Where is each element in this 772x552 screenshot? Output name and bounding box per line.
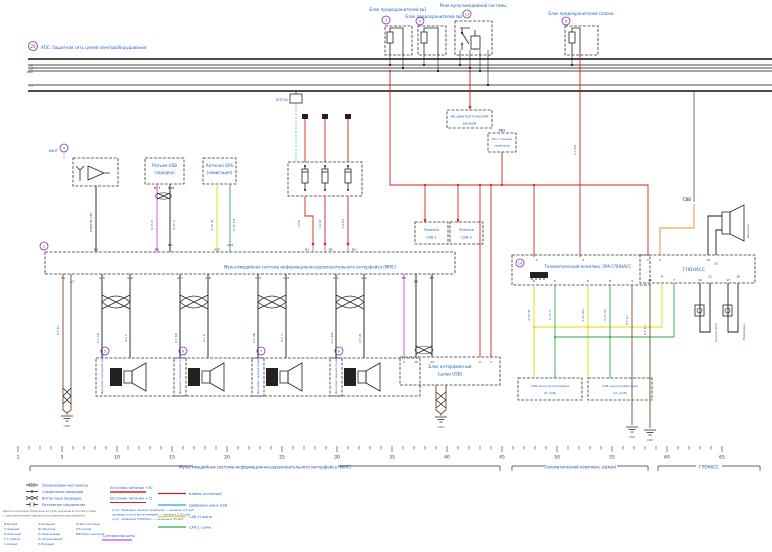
fuse3-label: Блок предохранителей салона (548, 11, 614, 16)
gnd-wire-label: 0,5 Кч (56, 325, 60, 335)
speaker-wire-label: 0,5 З (280, 334, 284, 342)
gps-wire-label-2: 0,35 ГЛ (232, 219, 236, 231)
relay-label: Реле мультимедийной системы (440, 3, 507, 8)
glonass-bottom-pin: 18 (736, 275, 740, 279)
ruler-number: 50 (554, 455, 560, 461)
aptok-label: АПТОК (276, 98, 289, 102)
fuse2-label: Блок предохранителей №2 (405, 14, 463, 19)
color-code: З-Зеленый (38, 522, 55, 526)
fusebox-wire-2: 1,0 КГ (318, 219, 322, 229)
glonass-bottom-pin: 11 (708, 275, 712, 279)
ruler-number: 55 (609, 455, 615, 461)
hu-top-pin: В2 (329, 248, 333, 252)
glonass-top-pin: 2 (659, 258, 661, 262)
bracket-telematics-label: Телематический комплекс (связи) (543, 465, 617, 470)
xv2-label-2: приборов (494, 144, 509, 148)
usb2-label-1: Розетка (459, 228, 474, 232)
hu-top-pin: В3 (352, 248, 356, 252)
speaker-wire-label: 0,5 ЖБ (330, 332, 334, 343)
color-code: Г-Голубой (4, 537, 20, 541)
can1-label-1: CAN шина мультимедиа (531, 384, 569, 388)
speaker-wire-label: 0,5 С (124, 334, 128, 342)
ruler-number: 60 (664, 455, 670, 461)
color-code: Ж-Желтый (38, 527, 55, 531)
tele-wire-label: 0,35 ЗЧ (603, 309, 607, 321)
ruler-number: 45 (499, 455, 505, 461)
iface-pin: 10 (414, 360, 418, 364)
speaker-name: Динамик задний правый (334, 355, 338, 394)
bracket-glonass-label: ГЛОНАСС (699, 465, 719, 470)
page-background (0, 0, 772, 552)
legend-power-15: Источник питания +15 (110, 497, 153, 501)
usb1-label-1: Розетка (424, 228, 439, 232)
tele-wire-label: 0,35 Ж (527, 309, 531, 321)
speaker-marker: 5 (104, 350, 106, 354)
note-marker: 29 (30, 44, 36, 49)
head-unit-marker: 1 (43, 245, 45, 249)
usb-wire-label-2: 0,35 Ч (172, 220, 176, 230)
color-code: Кч-Коричневый (38, 537, 63, 541)
ruler-number: 1 (17, 455, 20, 461)
color-code: Ф-Фиолетовый (76, 522, 100, 526)
diag-label-1: На диагностический (450, 115, 488, 119)
speaker-wire-label: 0,5 К (202, 333, 206, 342)
usb-socket-label-1: Разъем USB (152, 163, 177, 168)
glonass-bottom-pin: 8 (661, 275, 663, 279)
interface-label-1: Блок интерфейсный (428, 364, 471, 369)
iface-pin: 14 (430, 360, 434, 364)
glonass-speaker-label: Динамик (746, 224, 750, 238)
ruler-number: 30 (334, 455, 340, 461)
legend-symbol-label: Экранированный провод (42, 484, 89, 488)
tele-wire-label: 0,35 З (548, 310, 552, 320)
tele-bottom-pin: 4 (631, 279, 633, 283)
iface-pin: 2 (479, 360, 481, 364)
hu-top-pin: М6 (168, 243, 173, 247)
fusebox-wire-1: 1,0 К (297, 219, 301, 228)
speaker-name: Динамик передний левый (100, 353, 104, 394)
bus-label-31: 31 (29, 83, 33, 87)
gnd-label: GND (438, 425, 446, 429)
legend-antenna-cable: Кабель антенный (189, 492, 222, 496)
glonass-bottom-pin: 20 (648, 278, 652, 282)
speaker-wire-label: 0,5 СБ (96, 333, 100, 343)
sos-button-label: Кнопка SOS (714, 323, 718, 342)
telematics-label: Телематический комплекс ЭРА-ГЛОНАСС (544, 264, 632, 269)
color-code: Р-Розовый (38, 542, 54, 546)
bracket-mmc-label: Мультимедийная система информационно-раз… (179, 465, 352, 470)
legend-symbol-label: Соединение проводов (42, 490, 83, 494)
usb-socket-label-2: (зарядка) (154, 170, 175, 175)
ruler-number: 15 (169, 455, 175, 461)
antenna-wire-label: КАБЕЛЬ АНТ (89, 212, 93, 232)
tele-wire-label: 0,5 Кч (625, 315, 629, 325)
tele-bottom-pin: 5 (554, 279, 556, 283)
legend-can-h: CAN_H шина (189, 515, 212, 519)
fuse3-marker: 6 (565, 20, 567, 24)
telematics-marker: 14 (518, 262, 523, 266)
tele-bottom-pin: 6 (533, 279, 535, 283)
speaker-marker: 6 (182, 350, 184, 354)
ruler-number: 20 (224, 455, 230, 461)
legend-note-1a: Цвета изоляции проводов жгутов указаны в… (3, 509, 96, 513)
glonass-label: ГЛОНАСС (683, 267, 705, 273)
legend-symbol-label: Витая пара проводов (42, 497, 81, 501)
bus-note: АПС: Защитная сеть цепей электрооборудов… (41, 45, 147, 50)
hu-top-pin: А24 (227, 243, 233, 247)
gnd-label: GND (629, 435, 637, 439)
antenna-marker: 9 (63, 147, 65, 151)
legend-usb-bus: Цифровая шина USB (189, 504, 228, 508)
legend-note-2b: провода жгута мультимедиа — сечение 0,35… (112, 513, 191, 517)
can1-label-2: (K_CAN) (544, 391, 556, 395)
wiring-diagram-page: 29 АПС: Защитная сеть цепей электрообору… (0, 0, 772, 552)
speaker-marker: 8 (338, 350, 340, 354)
gps-label-1: Антенна GPS (206, 163, 234, 168)
speaker-name: Динамик передний правый (178, 351, 182, 394)
speaker-marker: 7 (260, 350, 262, 354)
color-code: Б-Белый (4, 522, 17, 526)
diag-label-2: разъем (463, 122, 477, 126)
usb2-label-2: USB-2 (461, 236, 472, 240)
speaker-wire-label: 0,5 ЗБ (252, 333, 256, 343)
antenna-connector-label: ХАНТ (48, 149, 58, 153)
gnd-label: GND (64, 424, 72, 428)
glonass-top-pin: 15 (714, 262, 718, 266)
usb1-label-2: USB-1 (426, 236, 437, 240)
tele-bottom-pin: 8 (609, 279, 611, 283)
color-code: К-Красный (4, 532, 21, 536)
speaker-wire-label: 0,5 Ж (358, 333, 362, 343)
hu-top-pin: М1 (94, 248, 99, 252)
glonass-top-pin: 1 (647, 258, 649, 262)
color-code: Ч-Черный (4, 527, 19, 531)
legend-note-2c: жгут проводов ГЛОНАСС — сечение 0,35 мм² (112, 517, 185, 521)
gps-label-2: (навигация) (207, 170, 233, 175)
bus-label-acc: ACC (27, 70, 33, 74)
head-unit-label: Мультимедийная система информационно-раз… (224, 265, 397, 270)
tele-top-pin: 1 (536, 258, 538, 262)
telematics-feed-label: 2,5 КЗ (573, 145, 577, 155)
can2-label-2: (CL_CAN) (613, 391, 627, 395)
relay-marker: 13 (465, 13, 469, 17)
speaker-wire-label: 0,5 КБ (174, 333, 178, 343)
color-code: С-Серый (4, 542, 17, 546)
tele-top-pin: 2 (582, 258, 584, 262)
hu-top-pin: В1 (305, 248, 309, 252)
legend-note-1b: с обозначениями завода-изготовителя авто… (3, 514, 85, 518)
glonass-bottom-pin: 7 (673, 278, 675, 282)
interface-label-2: (шлюз USB) (438, 372, 463, 377)
usb-wire-label-1: 0,35 Р (150, 220, 154, 230)
glonass-bottom-pin: 16 (698, 278, 702, 282)
ruler-number: 65 (719, 455, 725, 461)
ruler-number: 10 (114, 455, 120, 461)
glonass-top-pin: 14 (706, 258, 710, 262)
legend-can-l: CAN_L шина (189, 526, 211, 530)
iface-pin: 4 (403, 360, 405, 364)
ruler-number: 5 (61, 455, 64, 461)
legend-symbol-label: Разъемное соединение (42, 503, 85, 507)
fuse1-label: Блок предохранителей №1 (369, 7, 427, 12)
tele-bottom-pin: 9 (587, 279, 589, 283)
glonass-gnd-wire-label: 0,5 Кч (643, 325, 647, 335)
svv-label: СВВ (683, 197, 692, 202)
hu-top-pin: А25 (214, 248, 220, 252)
color-code: СН-Синий (76, 527, 91, 531)
legend-power-30: Источник питания +30 (110, 486, 153, 490)
gnd-label: GND (647, 438, 655, 442)
ruler-number: 35 (389, 455, 395, 461)
speaker-name: Динамик задний левый (256, 357, 260, 394)
gps-wire-label-1: 0,35 Ж (210, 219, 214, 231)
color-code: БЖ-Бело-желтый (76, 532, 104, 536)
glonass-bottom-pin: 17 (726, 278, 730, 282)
legend-note-2a: жгут проводов панели приборов — сечение … (112, 508, 195, 512)
hu-top-pin: М5 (155, 248, 160, 252)
color-code: О-Оранжевый (38, 532, 60, 536)
usb-pin-2: М18 (168, 186, 174, 190)
can2-label-1: CAN шина комбинации (602, 384, 638, 388)
fusebox-wire-3: 1,0 КЗ (341, 219, 345, 229)
wiring-diagram: 29 АПС: Защитная сеть цепей электрообору… (0, 0, 772, 552)
microphone-label: Микрофон (742, 324, 746, 340)
fuse1-marker: 3 (385, 19, 387, 23)
xv2-tag: ХВ2 (498, 129, 505, 133)
iface-pin: 3 (490, 360, 492, 364)
tele-wire-label: 0,35 ЖЧ (581, 309, 585, 322)
ruler-number: 25 (279, 455, 285, 461)
legend-signal: Сигнальная цепь (103, 534, 135, 538)
xv2-label-1: Жгут панели (492, 137, 513, 141)
ruler-number: 40 (444, 455, 450, 461)
